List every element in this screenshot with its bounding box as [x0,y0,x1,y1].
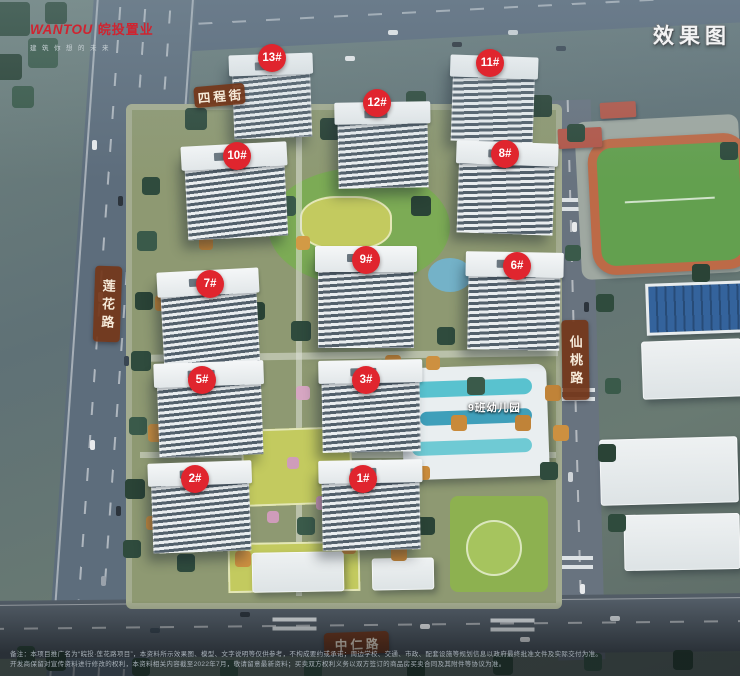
commercial-podium [252,551,345,593]
building-badge-11: 11# [476,49,504,77]
path [296,118,302,596]
building-badge-9: 9# [352,246,380,274]
building-badge-12: 12# [363,89,391,117]
building-badge-3: 3# [352,366,380,394]
building-badge-7: 7# [196,270,224,298]
rendering-canvas: 1# 2# 3# 5# 6# 7# 8# 9# 10# 11# 12# 13# … [0,0,740,676]
logo-tagline: 建筑你想的未来 [30,42,154,52]
cars-layer [0,0,10,5]
school-building [600,101,637,119]
kindergarten-play-circle [466,520,522,576]
park-lawn [300,196,392,250]
stadium-track [587,132,740,276]
building-badge-5: 5# [188,366,216,394]
building-badge-6: 6# [503,252,531,280]
building-badge-13: 13# [258,44,286,72]
road-banner-top: 四程街 [193,83,246,108]
building-tower-12 [337,107,428,189]
building-badge-8: 8# [491,140,519,168]
brand-logo: WANTOU 皖投置业 建筑你想的未来 [30,19,154,52]
office-building [641,338,740,399]
building-badge-1: 1# [349,465,377,493]
road-banner-right: 仙桃路 [561,320,589,400]
kindergarten-label: 9班幼儿园 [468,400,521,415]
disclaimer-line-2: 开发商保留对宣传资料进行修改的权利，本资料相关内容截至2022年7月，敬请留意最… [10,660,724,670]
office-building [624,513,740,571]
solar-roof-building [645,280,740,336]
logo-wordmark-cn: 皖投置业 [98,19,154,38]
top-road [129,0,740,54]
school-building [558,127,603,149]
disclaimer-text: 备注：本项目推广名为“皖投·莲花路项目”，本资料所示效果图、模型、文字说明等仅供… [10,650,724,670]
building-badge-10: 10# [223,142,251,170]
disclaimer-line-1: 备注：本项目推广名为“皖投·莲花路项目”，本资料所示效果图、模型、文字说明等仅供… [10,650,724,660]
logo-wordmark-en: WANTOU [30,22,93,37]
office-building [599,436,739,506]
road-banner-left: 莲花路 [93,266,123,343]
commercial-podium [372,557,435,590]
building-badge-2: 2# [181,465,209,493]
rendering-watermark: 效果图 [653,20,731,50]
